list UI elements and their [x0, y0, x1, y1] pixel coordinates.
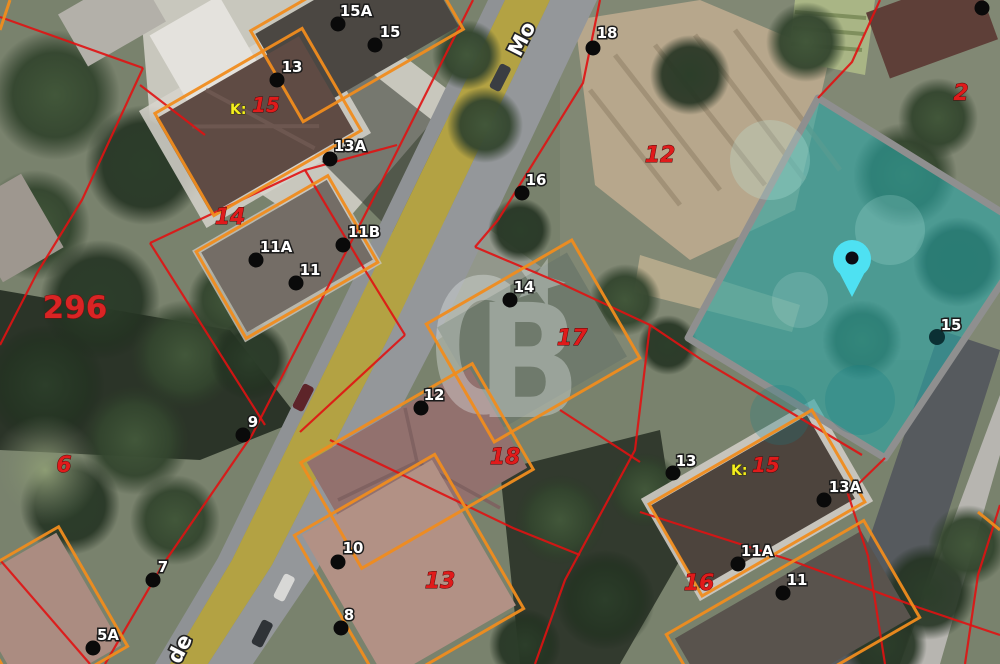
building-number-dot	[586, 41, 601, 56]
building-number-label: 11B	[348, 223, 380, 241]
satellite-parcel-map[interactable]: C B ★	[0, 0, 1000, 664]
building-number-label: 15A	[340, 2, 373, 20]
parcel-label-12: 12	[645, 143, 676, 168]
parcel-label-16: 16	[684, 571, 715, 596]
building-number-label: 13A	[829, 478, 862, 496]
parcel-label-18: 18	[490, 445, 521, 470]
parcel-label-6: 6	[56, 453, 71, 478]
building-number-label: 16	[526, 171, 547, 189]
building-number-label: 15	[380, 23, 401, 41]
parcel-label-296: 296	[43, 290, 108, 326]
building-number-label: 12	[424, 386, 445, 404]
building-number-label: 5A	[97, 626, 119, 644]
building-number-label: 11A	[260, 238, 293, 256]
building-number-label: 13A	[334, 137, 367, 155]
building-number-label: 8	[344, 606, 354, 624]
building-number-label: 13	[282, 58, 303, 76]
building-number-dot	[975, 1, 990, 16]
floor-label-value: 15	[752, 453, 780, 477]
building-number-label: 15	[941, 316, 962, 334]
parcel-label-2: 2	[953, 81, 968, 106]
building-number-label: 11A	[741, 542, 774, 560]
parcel-label-13: 13	[425, 569, 456, 594]
building-number-label: 13	[676, 452, 697, 470]
building-number-label: 9	[248, 413, 258, 431]
building-number-label: 7	[158, 558, 168, 576]
building-number-label: 18	[597, 24, 618, 42]
parcel-label-14: 14	[215, 205, 246, 230]
floor-label-prefix: K:	[731, 463, 747, 479]
building-number-label: 11	[787, 571, 808, 589]
pin-center-dot	[846, 252, 859, 265]
floor-label-prefix: K:	[230, 102, 246, 118]
floor-label-value: 15	[252, 93, 280, 117]
map-canvas: C B ★	[0, 0, 1000, 664]
building-number-label: 14	[514, 278, 535, 296]
building-number-label: 11	[300, 261, 321, 279]
building-number-label: 10	[343, 539, 364, 557]
parcel-label-17: 17	[557, 326, 588, 351]
